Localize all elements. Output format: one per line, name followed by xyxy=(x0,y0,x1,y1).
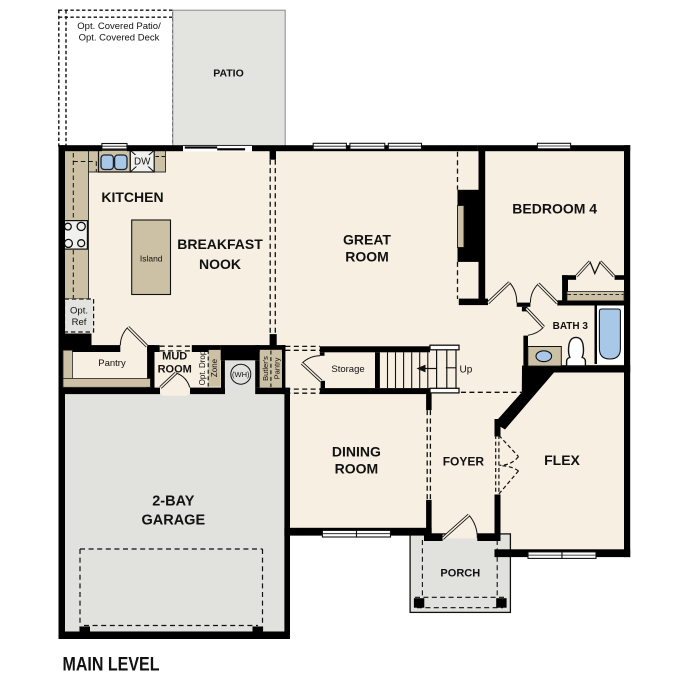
svg-text:Pantry: Pantry xyxy=(98,358,126,369)
svg-text:ROOM: ROOM xyxy=(158,363,192,375)
svg-text:MUD: MUD xyxy=(162,351,187,363)
svg-text:Up: Up xyxy=(460,364,473,375)
svg-text:BREAKFAST: BREAKFAST xyxy=(177,236,263,252)
svg-text:Ref: Ref xyxy=(72,317,87,328)
svg-text:BEDROOM 4: BEDROOM 4 xyxy=(512,201,597,217)
svg-text:2-BAY: 2-BAY xyxy=(152,494,195,510)
svg-text:DW: DW xyxy=(134,157,151,168)
svg-text:ROOM: ROOM xyxy=(335,461,379,477)
svg-text:KITCHEN: KITCHEN xyxy=(101,189,163,205)
svg-text:Zone: Zone xyxy=(210,358,219,377)
svg-text:BATH 3: BATH 3 xyxy=(553,321,589,332)
svg-text:GREAT: GREAT xyxy=(343,232,391,248)
svg-text:Opt.: Opt. xyxy=(70,306,88,317)
svg-text:Opt. Covered Patio/: Opt. Covered Patio/ xyxy=(77,21,161,32)
svg-text:Storage: Storage xyxy=(331,364,364,375)
svg-text:Butler's: Butler's xyxy=(261,356,270,381)
svg-text:Island: Island xyxy=(140,254,163,264)
svg-text:DINING: DINING xyxy=(332,443,381,459)
svg-text:PORCH: PORCH xyxy=(440,568,480,580)
svg-text:FLEX: FLEX xyxy=(544,452,580,468)
svg-text:(WH): (WH) xyxy=(232,370,250,379)
svg-text:Opt. Drop: Opt. Drop xyxy=(198,350,207,385)
svg-text:FOYER: FOYER xyxy=(443,454,485,468)
svg-text:NOOK: NOOK xyxy=(199,256,241,272)
svg-text:Pantry: Pantry xyxy=(273,357,282,379)
svg-text:Opt. Covered Deck: Opt. Covered Deck xyxy=(79,33,160,44)
svg-text:MAIN LEVEL: MAIN LEVEL xyxy=(63,655,160,676)
svg-text:ROOM: ROOM xyxy=(345,248,389,264)
svg-text:GARAGE: GARAGE xyxy=(141,513,205,529)
svg-text:PATIO: PATIO xyxy=(213,68,244,80)
